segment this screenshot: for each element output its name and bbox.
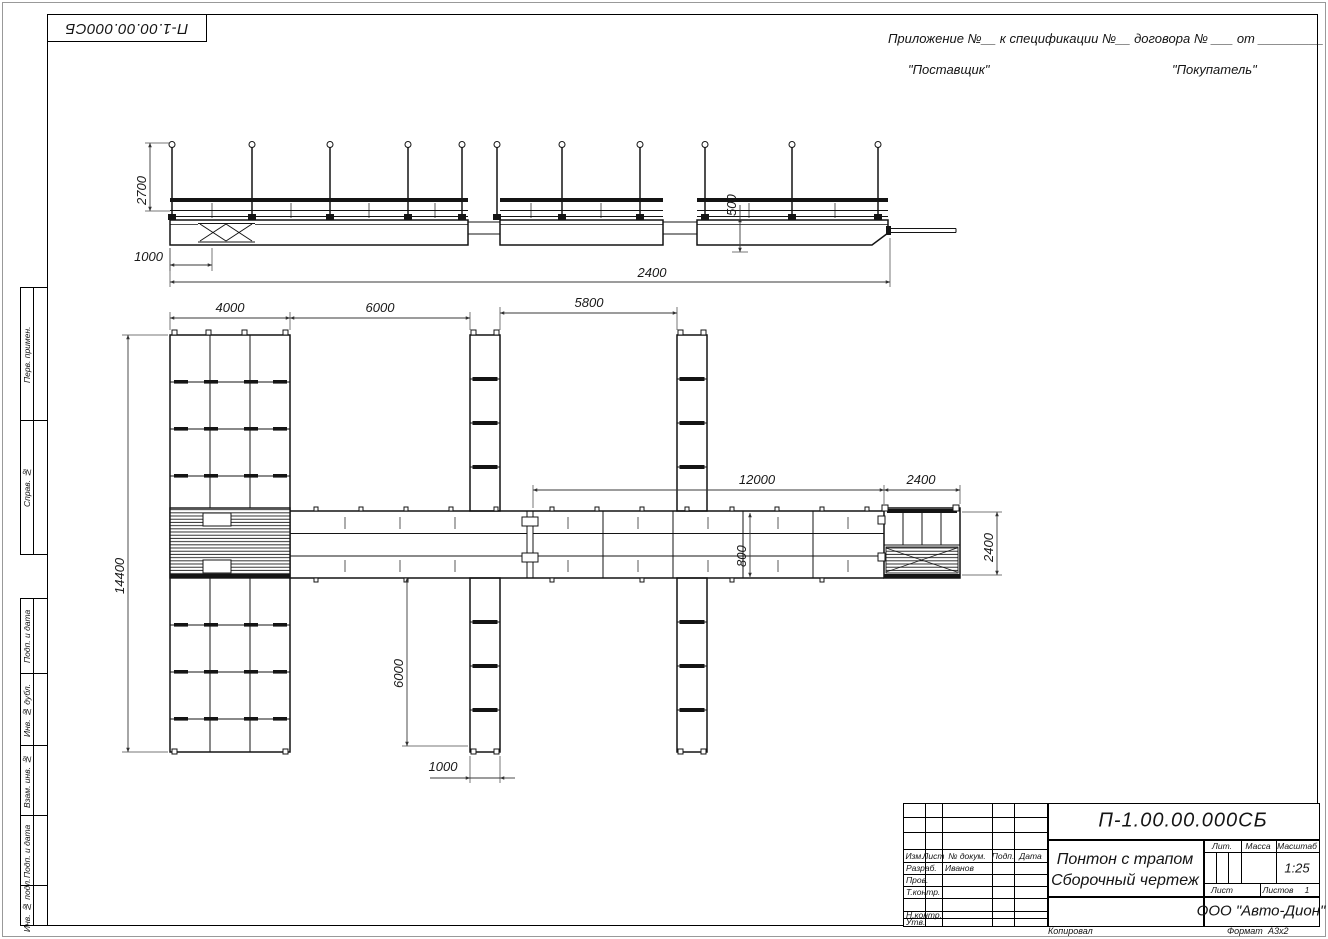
elevation-railing bbox=[170, 198, 888, 218]
plan-finger-pier-bottom-2 bbox=[677, 578, 707, 754]
drawing-title-line2: Сборочный чертеж bbox=[1051, 872, 1199, 890]
dimension-2400-depth: 2400 bbox=[962, 512, 1002, 575]
stamp-col-ndok: № докум. bbox=[948, 851, 985, 861]
dimension-800: 800 bbox=[734, 513, 750, 577]
dim-label-5800: 5800 bbox=[575, 295, 605, 310]
format-value: А3х2 bbox=[1268, 926, 1289, 936]
dim-label-500: 500 bbox=[724, 194, 739, 216]
dim-label-2400-v: 2400 bbox=[981, 532, 996, 563]
elevation-scissor-lift bbox=[198, 222, 255, 243]
copied-label: Копировал bbox=[1048, 926, 1093, 936]
dim-label-1000-finger: 1000 bbox=[429, 759, 459, 774]
elevation-posts bbox=[168, 142, 882, 221]
dimension-12000: 12000 bbox=[533, 472, 884, 508]
stamp-sheet-label: Лист bbox=[1211, 885, 1233, 895]
stamp-mass-label: Масса bbox=[1245, 841, 1270, 851]
stamp-row-utv: Утв. bbox=[906, 917, 925, 927]
dim-label-800: 800 bbox=[734, 545, 749, 567]
company-name: ООО "Авто-Дион" bbox=[1197, 903, 1326, 920]
plan-finger-pier-top-2 bbox=[677, 330, 707, 511]
stamp-lit-label: Лит. bbox=[1212, 841, 1232, 851]
elevation-gangway bbox=[886, 226, 956, 235]
dim-label-6000: 6000 bbox=[366, 300, 396, 315]
stamp-author-name: Иванов bbox=[945, 863, 974, 873]
elevation-view: 2700 1000 2400 500 bbox=[134, 142, 956, 288]
stamp-col-list: Лист bbox=[923, 851, 945, 861]
title-block-doc-number: П-1.00.00.000СБ bbox=[1098, 810, 1267, 833]
stamp-col-izm: Изм. bbox=[905, 851, 923, 861]
drawing-canvas: 2700 1000 2400 500 bbox=[0, 0, 1328, 939]
dimension-14400: 14400 bbox=[112, 335, 168, 752]
dimension-2400-platform: 2400 bbox=[884, 472, 960, 504]
dimension-5800: 5800 bbox=[500, 295, 677, 330]
plan-walkway bbox=[290, 507, 884, 582]
stamp-row-razrab: Разраб. bbox=[906, 863, 937, 873]
elevation-floats bbox=[170, 220, 888, 245]
format-label: Формат bbox=[1227, 926, 1263, 936]
plan-finger-pier-top-1 bbox=[470, 330, 500, 511]
dimension-6000-finger: 6000 bbox=[391, 578, 468, 746]
dim-label-12000: 12000 bbox=[739, 472, 776, 487]
dim-label-14400: 14400 bbox=[112, 557, 127, 594]
stamp-scale-label: Масштаб bbox=[1277, 841, 1317, 851]
dim-label-2400-h: 2400 bbox=[906, 472, 937, 487]
sheets-count: 1 bbox=[1305, 885, 1310, 895]
dim-label-4000: 4000 bbox=[216, 300, 246, 315]
plan-end-platform bbox=[878, 505, 960, 578]
scale-value: 1:25 bbox=[1284, 861, 1309, 876]
stamp-col-data: Дата bbox=[1019, 851, 1041, 861]
stamp-sheets-label: Листов bbox=[1263, 885, 1294, 895]
dimension-1000-elev: 1000 bbox=[134, 248, 212, 271]
drawing-sheet: П-1.00.00.000СБ Приложение №__ к специфи… bbox=[0, 0, 1328, 939]
dim-label-2700: 2700 bbox=[134, 175, 149, 206]
dimension-6000-bay: 6000 bbox=[290, 300, 470, 330]
dim-label-2400: 2400 bbox=[637, 265, 668, 280]
stamp-col-podp: Подп. bbox=[992, 851, 1015, 861]
dim-label-6000-finger: 6000 bbox=[391, 658, 406, 688]
dim-label-1000: 1000 bbox=[134, 249, 164, 264]
title-block: Изм. Лист № докум. Подп. Дата Разраб. Ив… bbox=[903, 803, 1320, 927]
plan-view: 4000 6000 5800 12000 2400 bbox=[112, 295, 1002, 783]
stamp-row-tkontr: Т.контр. bbox=[906, 887, 940, 897]
stamp-row-prov: Пров. bbox=[906, 875, 928, 885]
drawing-title-line1: Понтон с трапом bbox=[1057, 851, 1193, 869]
dimension-1000-finger: 1000 bbox=[429, 756, 515, 783]
dimension-4000: 4000 bbox=[170, 300, 290, 330]
plan-left-pier-hatch-deck bbox=[170, 508, 290, 578]
dimension-500: 500 bbox=[724, 194, 748, 252]
plan-finger-pier-bottom-1 bbox=[470, 578, 500, 754]
dimension-2700: 2700 bbox=[134, 143, 170, 211]
